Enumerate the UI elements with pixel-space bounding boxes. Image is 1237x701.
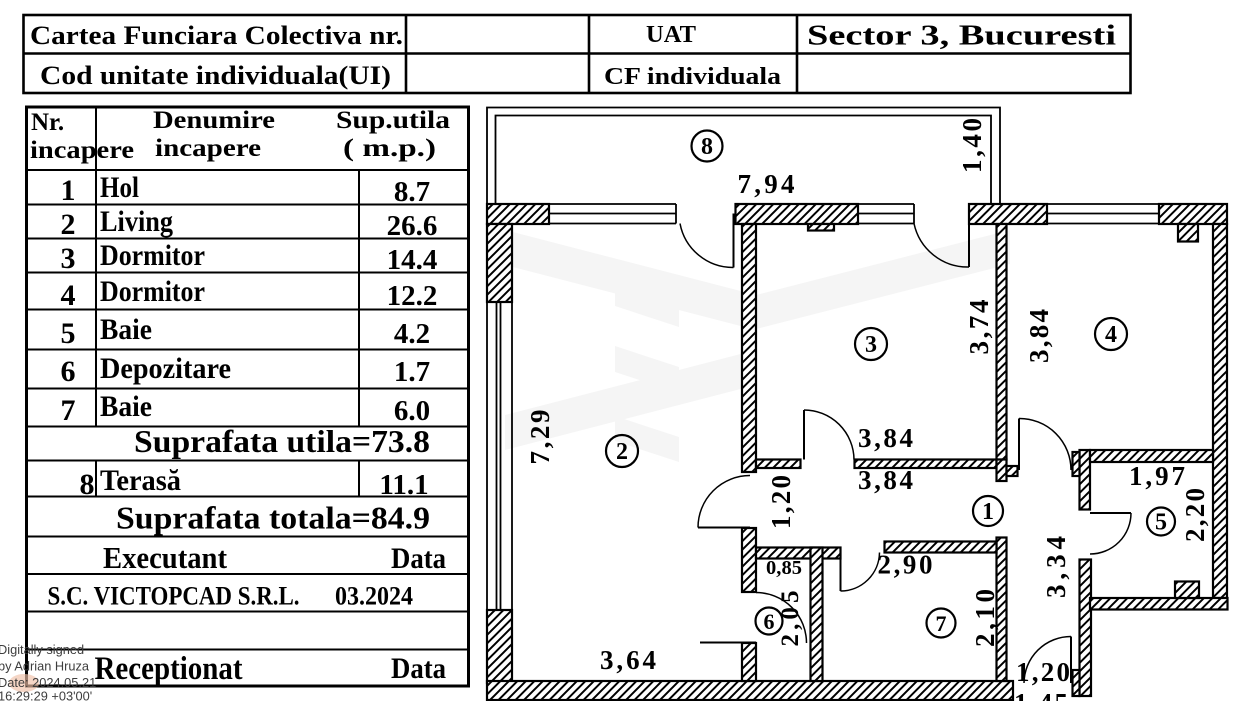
svg-text:Sector 3, Bucuresti: Sector 3, Bucuresti xyxy=(807,20,1116,52)
svg-text:7,29: 7,29 xyxy=(525,410,555,465)
svg-text:03.2024: 03.2024 xyxy=(335,582,413,611)
svg-text:4.2: 4.2 xyxy=(394,318,430,350)
svg-text:4: 4 xyxy=(1105,322,1117,348)
svg-text:S.C. VICTOPCAD S.R.L.: S.C. VICTOPCAD S.R.L. xyxy=(48,582,300,611)
svg-text:Living: Living xyxy=(100,205,173,238)
svg-text:7: 7 xyxy=(61,394,76,427)
svg-text:1: 1 xyxy=(982,499,994,525)
svg-text:Digitally signed: Digitally signed xyxy=(0,642,84,657)
svg-text:14.4: 14.4 xyxy=(387,244,438,276)
svg-text:Denumire: Denumire xyxy=(153,107,275,134)
svg-text:8.7: 8.7 xyxy=(394,176,430,208)
svg-text:1,40: 1,40 xyxy=(957,118,987,173)
svg-text:Nr.: Nr. xyxy=(31,109,64,136)
svg-text:Cod unitate individuala(UI): Cod unitate individuala(UI) xyxy=(40,61,391,90)
svg-text:3,34: 3,34 xyxy=(1041,536,1071,598)
svg-text:2,10: 2,10 xyxy=(970,589,1000,647)
svg-text:Depozitare: Depozitare xyxy=(100,352,231,385)
svg-text:Terasă: Terasă xyxy=(100,464,181,497)
svg-text:2,20: 2,20 xyxy=(1180,488,1210,542)
svg-text:1,45: 1,45 xyxy=(1014,688,1068,701)
svg-text:4: 4 xyxy=(61,279,76,312)
svg-text:Executant: Executant xyxy=(103,540,228,575)
svg-text:3,84: 3,84 xyxy=(1024,309,1054,363)
svg-text:CF individuala: CF individuala xyxy=(604,64,781,90)
svg-text:12.2: 12.2 xyxy=(387,280,438,312)
svg-text:Hol: Hol xyxy=(100,171,139,204)
svg-text:26.6: 26.6 xyxy=(387,210,438,242)
svg-text:Baie: Baie xyxy=(100,390,152,423)
svg-text:Dormitor: Dormitor xyxy=(100,275,205,308)
svg-text:Data: Data xyxy=(391,542,446,575)
svg-text:Data: Data xyxy=(391,652,446,685)
svg-text:2,90: 2,90 xyxy=(878,550,933,580)
svg-text:3,64: 3,64 xyxy=(600,645,656,675)
svg-text:7,94: 7,94 xyxy=(738,169,795,199)
svg-text:3,84: 3,84 xyxy=(858,423,913,453)
svg-text:3,84: 3,84 xyxy=(858,465,913,495)
svg-text:1,97: 1,97 xyxy=(1129,461,1185,491)
svg-text:Sup.utila: Sup.utila xyxy=(336,107,451,134)
svg-text:8: 8 xyxy=(80,468,95,501)
svg-text:by Adrian Hruza: by Adrian Hruza xyxy=(0,659,90,674)
svg-text:Baie: Baie xyxy=(100,313,152,346)
svg-text:incapere: incapere xyxy=(155,135,261,162)
svg-text:7: 7 xyxy=(936,611,947,636)
svg-text:Cartea Funciara Colectiva nr.: Cartea Funciara Colectiva nr. xyxy=(30,21,403,50)
svg-text:3: 3 xyxy=(61,242,76,275)
svg-text:Dormitor: Dormitor xyxy=(100,239,205,272)
svg-text:16:29:29 +03'00': 16:29:29 +03'00' xyxy=(0,689,92,701)
svg-text:6: 6 xyxy=(764,609,775,634)
svg-text:incapere: incapere xyxy=(30,137,134,164)
svg-text:2: 2 xyxy=(616,439,628,465)
svg-text:3: 3 xyxy=(865,332,877,358)
svg-text:Suprafata totala=84.9: Suprafata totala=84.9 xyxy=(116,500,430,536)
svg-text:5: 5 xyxy=(1155,510,1167,536)
svg-text:3,74: 3,74 xyxy=(964,300,994,355)
svg-text:2,05: 2,05 xyxy=(777,591,804,647)
svg-text:1.7: 1.7 xyxy=(394,356,430,388)
svg-text:1,20: 1,20 xyxy=(766,475,796,529)
svg-text:11.1: 11.1 xyxy=(379,469,428,501)
svg-text:( m.p.): ( m.p.) xyxy=(343,135,436,162)
svg-text:1: 1 xyxy=(61,174,76,207)
svg-text:1,20: 1,20 xyxy=(1016,657,1070,687)
svg-text:8: 8 xyxy=(701,134,713,160)
svg-text:6: 6 xyxy=(61,355,76,388)
svg-text:5: 5 xyxy=(61,317,76,350)
svg-text:Suprafata utila=73.8: Suprafata utila=73.8 xyxy=(134,423,430,459)
svg-text:UAT: UAT xyxy=(646,22,696,48)
svg-text:2: 2 xyxy=(61,208,76,241)
svg-text:0,85: 0,85 xyxy=(766,557,802,579)
svg-text:Receptionat: Receptionat xyxy=(95,651,243,687)
